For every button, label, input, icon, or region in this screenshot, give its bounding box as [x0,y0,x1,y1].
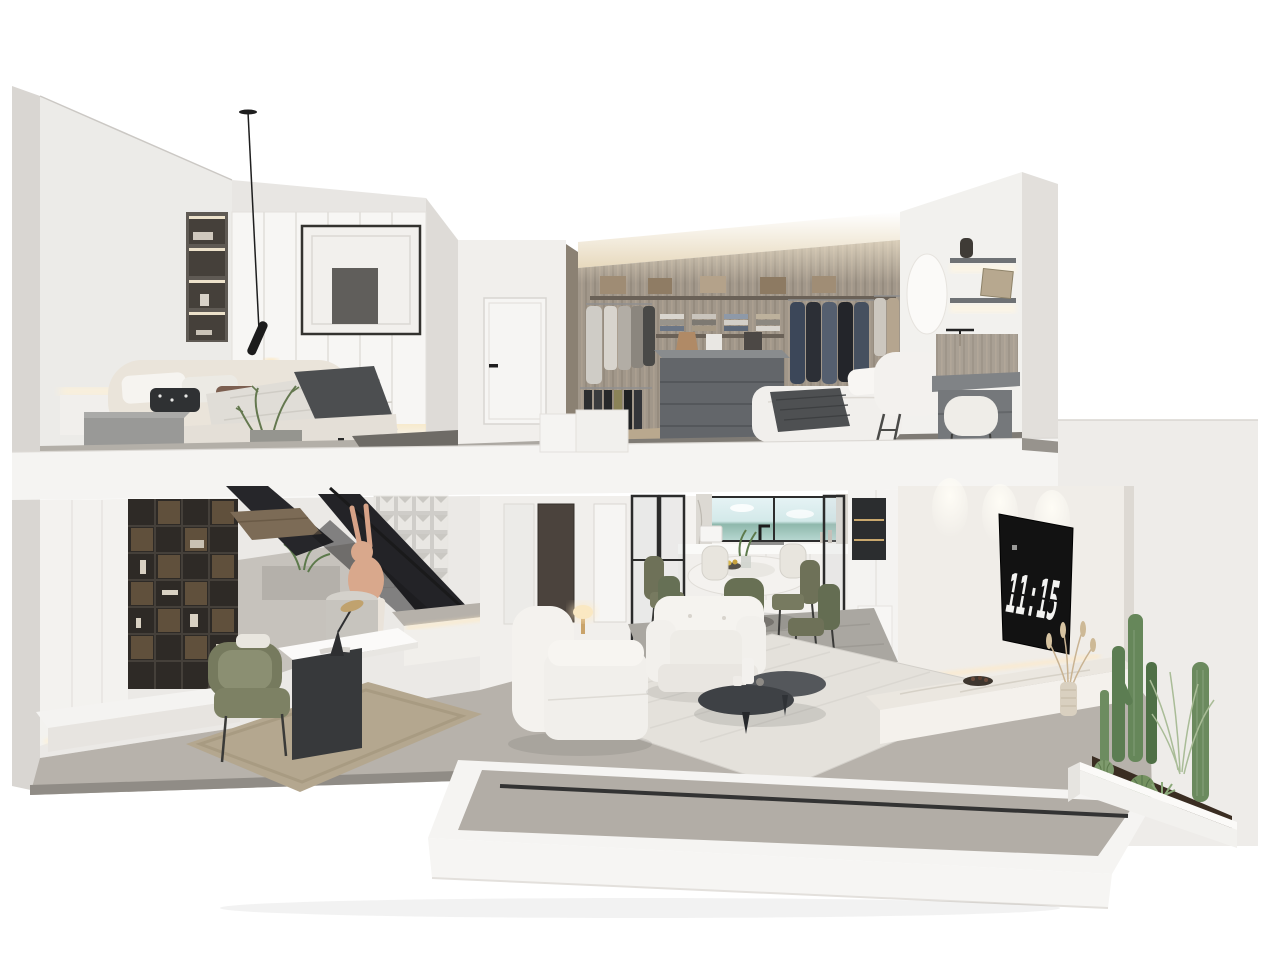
slab-steps [540,410,628,452]
white-door [594,504,626,622]
deco-ball [756,678,764,686]
pillow-houndstooth [150,388,200,412]
kitchen-window [710,497,838,541]
white-vase [742,658,754,684]
cream-chair [702,546,728,580]
decorative-bowl [963,676,993,686]
coffee-table-lower-disc [698,685,794,715]
books [193,232,213,240]
framed-artwork [302,226,420,334]
round-mirror [907,254,947,334]
illuminated-niche-shelves [186,212,228,342]
dark-display-niche [852,498,886,560]
left-exterior-cut-wall [12,86,40,792]
ground-shadow [220,898,1060,918]
stair-parapet [262,566,340,600]
door-handle [489,364,498,368]
storage-box [812,276,836,293]
handbag-tan [676,332,698,350]
chair-headrest [236,634,270,648]
tall-cactus [1192,662,1209,802]
leaning-frame [981,269,1014,299]
vase-small [200,294,209,306]
storage-box [600,276,626,294]
handbag-dark [744,332,762,350]
walk-in-closet [566,172,1022,462]
spotlight-glow [932,478,968,538]
cloud [786,510,814,519]
sink [750,542,784,545]
plant-vase [741,556,751,568]
right-wall-side-face [1022,172,1058,452]
weather-glyph [1012,545,1017,550]
door-frame-white [504,504,534,624]
small-appliance [700,526,722,542]
storage-box [648,278,672,294]
white-cup [733,676,742,686]
storage-box [760,277,786,294]
upper-hallway-door [484,298,546,424]
handbag-white [706,334,722,350]
dark-door [538,504,574,622]
apartment-cutaway-render: 11:15 [0,0,1280,960]
bedroom-return-wall [426,198,458,452]
storage-box [700,276,726,293]
bowl-small [196,330,212,335]
cloud [730,504,754,512]
render-canvas: 11:15 [0,0,1280,960]
shelf-vase [960,238,973,258]
